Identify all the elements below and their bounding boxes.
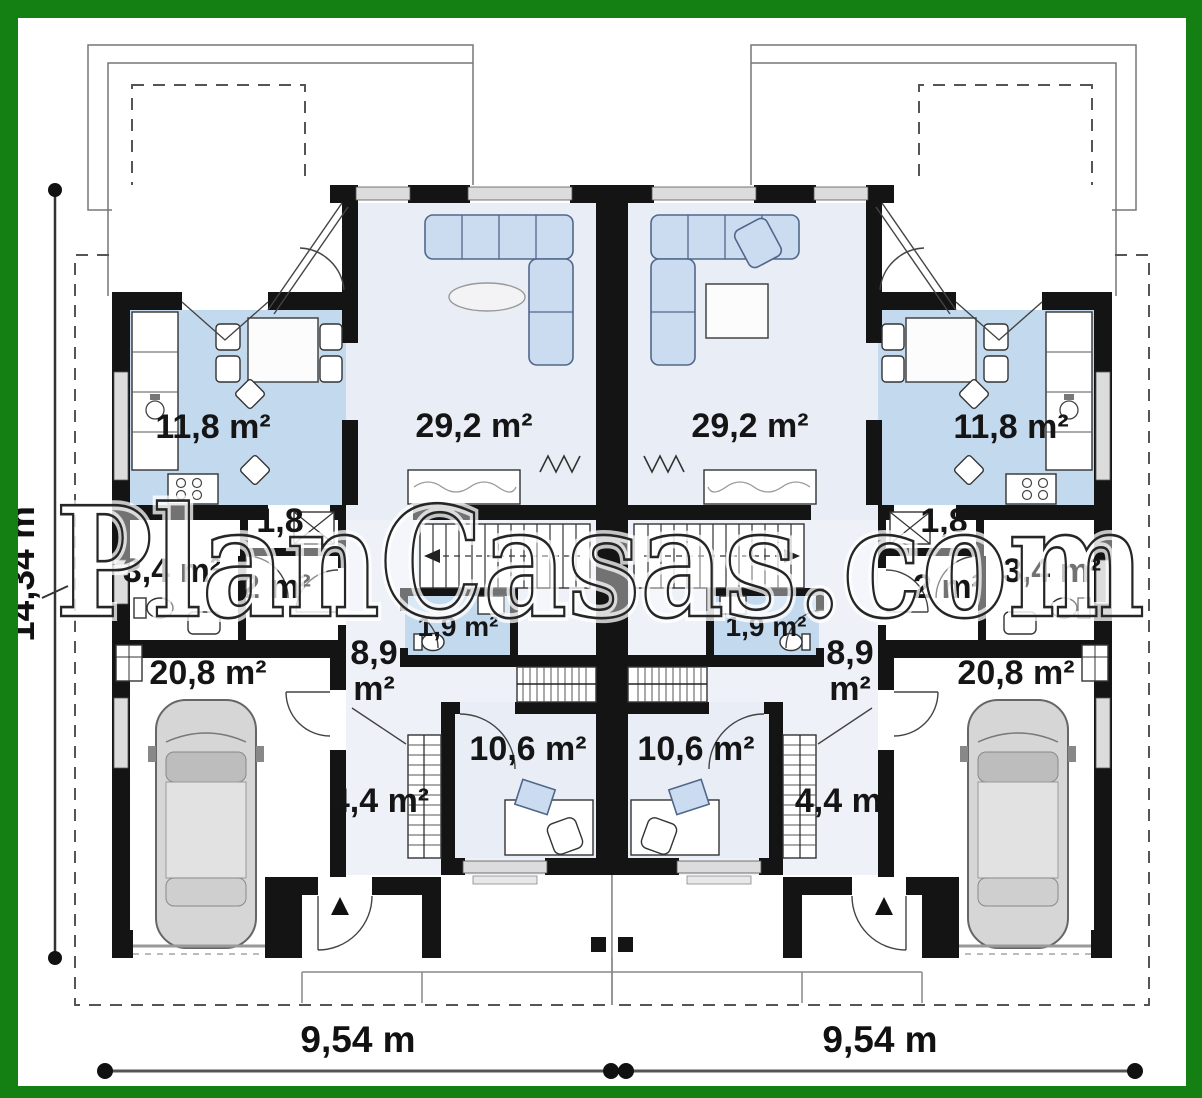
label-kitchen-left: 11,8 m²: [155, 408, 270, 446]
label-garage-right: 20,8 m²: [957, 654, 1074, 692]
dimension-width-left-label: 9,54 m: [300, 1019, 415, 1060]
label-room-left: 10,6 m²: [469, 730, 586, 768]
floor-plan: 11,8 m² 29,2 m² 1,8 3,4 m² 2 m² 1,9 m² 8…: [0, 0, 1202, 1098]
label-living-right: 29,2 m²: [691, 407, 808, 445]
watermark: PlanCasas.com PlanCasas.com: [55, 473, 1145, 652]
label-garage-left: 20,8 m²: [149, 654, 266, 692]
label-kitchen-right: 11,8 m²: [953, 408, 1068, 446]
label-storage-right: 4,4 m²: [795, 782, 893, 820]
watermark-text: PlanCasas.com: [55, 473, 1145, 652]
dimension-width-right-label: 9,54 m: [822, 1019, 937, 1060]
label-corridor-right-2: m²: [829, 670, 871, 708]
label-corridor-left-2: m²: [353, 670, 395, 708]
wardrobe-icon: [517, 667, 596, 702]
rug-icon: [449, 283, 525, 311]
label-storage-left: 4,4 m²: [331, 782, 429, 820]
label-room-right: 10,6 m²: [637, 730, 754, 768]
floor-plan-page: 11,8 m² 29,2 m² 1,8 3,4 m² 2 m² 1,9 m² 8…: [0, 0, 1202, 1098]
kitchen-counter-icon: [132, 312, 178, 470]
label-living-left: 29,2 m²: [415, 407, 532, 445]
car-icon: [148, 700, 264, 948]
